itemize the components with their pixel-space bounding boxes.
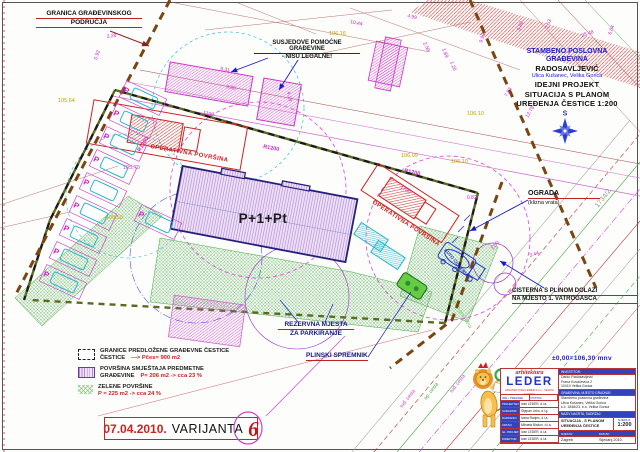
svg-text:P: P (92, 154, 101, 165)
callout-rezervna: REZERVNA MJESTA ZA PARKIRANJE (278, 321, 354, 337)
logo-box: arhitektura LEDER ARHITEKTURA LEDER d.o.… (501, 369, 558, 395)
compass-rose: S (552, 111, 578, 145)
drawing-title-line1: SITUACIJA S PLANOM (503, 90, 631, 100)
svg-text:2.28: 2.28 (106, 33, 117, 40)
date-variant-box: 07.04.2010. VARIJANTA 6 (104, 417, 258, 440)
svg-text:P: P (112, 108, 121, 119)
legend-row-building: POVRŠINA SMJEŠTAJA PREDMETNE GRAĐEVINEP=… (78, 366, 303, 380)
signature-row: CRTAO:Mihaela Blažon, d.i.a. (501, 422, 558, 429)
header-signature: POTPIS (530, 395, 559, 400)
svg-text:4.99: 4.99 (407, 13, 418, 21)
svg-text:106.16: 106.16 (329, 31, 346, 37)
legend-row-boundary: GRANICE PREDLOŽENE GRAĐEVNE ČESTICE ČEST… (78, 348, 303, 362)
svg-text:1100: 1100 (203, 110, 215, 118)
logo-leder: LEDER (501, 377, 558, 388)
callout-rezervna-line1: REZERVNA MJESTA (278, 321, 354, 330)
dashed-boundary-swatch (78, 349, 95, 360)
investor-section: INVESTITOR: Darko Radosavljević Frana Ko… (559, 369, 635, 390)
svg-text:P: P (52, 246, 61, 257)
callout-plinski-text: PLINSKI SPREMNIK (306, 352, 368, 361)
callout-susjedne-line2: - NISU LEGALNE! (282, 54, 332, 60)
building-hatch-swatch (78, 367, 95, 378)
drawing-title-line2: UREĐENJA ČESTICE 1:200 (503, 99, 631, 109)
drawing-name-section: NAZIV NACRTA, SADRŽAJ: SITUACIJA - S PLA… (559, 412, 635, 432)
road-label: tuđ. cesta (449, 373, 467, 394)
signature-row: RAZRADIO:Ivana Ranjec, d.i.a. (501, 415, 558, 422)
road-label: tuđ. cesta (399, 388, 417, 409)
svg-text:P: P (62, 223, 71, 234)
green-hatch-swatch (78, 385, 93, 394)
operational-area-label: OPERATIVNA POVRŠINA (150, 142, 230, 164)
svg-text:P: P (82, 177, 91, 188)
reserve-parking-stalls (354, 222, 405, 269)
legend-building-line1: POVRŠINA SMJEŠTAJA PREDMETNE (100, 366, 204, 373)
legend-building-area: P= 206 m2 -> cca 23 % (140, 373, 202, 379)
svg-text:106.09: 106.09 (401, 153, 418, 159)
callout-granica: GRANICA GRAĐEVINSKOG PODRUČJA (36, 10, 142, 28)
legend-row-green: ZELENE POVRŠINE P = 225 m2 -> cca 24 % (78, 384, 303, 398)
callout-cisterna: CISTERNA S PLINOM DOLAZI NA MJESTO 1. VA… (512, 288, 638, 304)
legend-building-line2: GRAĐEVINE (100, 373, 134, 379)
signature-row: DIREKTOR:Ivan LEDER, d.i.a. (501, 436, 558, 443)
callout-susjedne-line1: SUSJEDOVE POMOĆNE GRAĐEVINE (254, 40, 360, 54)
svg-text:3.44: 3.44 (529, 250, 540, 259)
north-letter: S (563, 111, 568, 118)
legend-boundary-area: —> Pčes= 900 m2 (131, 355, 180, 361)
signature-table: IME I PREZIME POTPIS PROJEKTANT:Ivan LED… (501, 395, 558, 443)
svg-text:10.44: 10.44 (350, 19, 364, 28)
svg-text:6.04: 6.04 (607, 24, 616, 35)
callout-plinski: PLINSKI SPREMNIK (306, 352, 368, 361)
svg-text:105.70: 105.70 (123, 165, 140, 171)
callout-ograda-line1: OGRADA (528, 190, 600, 199)
project-phase: IDEJNI PROJEKT (503, 80, 631, 90)
svg-text:P: P (72, 200, 81, 211)
elevation-datum-note: ±0,00=106,30 mnv (552, 355, 612, 362)
svg-text:1.89: 1.89 (440, 48, 449, 59)
svg-text:0.92: 0.92 (93, 49, 102, 60)
project-address: Ulica Kušanec, Velika Gorica (503, 73, 631, 80)
signature-row: GL. PROJEKTANT:Ivan LEDER, d.i.a. (501, 429, 558, 436)
project-type-line2: GRAĐEVINA (503, 56, 631, 64)
callout-granica-line2: PODRUČJA (36, 19, 142, 28)
road-label: op. cesta (423, 381, 440, 401)
legend-boundary-line2: ČESTICE (100, 355, 125, 361)
title-block: arhitektura LEDER ARHITEKTURA LEDER d.o.… (500, 368, 636, 444)
building-label: P+1+Pt (239, 211, 288, 226)
place-date-section: MJESTO:DATUM: ZagrebSiječanj 2010. (559, 431, 635, 443)
radius-label: R1200 (263, 144, 280, 153)
signature-row: SURADNIK:Stjepan Leko, d.i.g. (501, 408, 558, 415)
svg-text:1.20: 1.20 (448, 61, 457, 72)
header-name: IME I PREZIME (501, 395, 530, 400)
svg-text:105.50: 105.50 (106, 215, 123, 221)
svg-text:0.82: 0.82 (467, 195, 477, 201)
project-title-block: STAMBENO POSLOVNA GRAĐEVINA RADOSAVLJEVI… (503, 48, 631, 109)
callout-rezervna-line2: ZA PARKIRANJE (290, 330, 342, 337)
scale-cell: MJERILO: 1:200 (613, 418, 635, 430)
legend-green-line1: ZELENE POVRŠINE (98, 384, 161, 391)
svg-text:106.10: 106.10 (467, 111, 484, 117)
callout-granica-line1: GRANICA GRAĐEVINSKOG (36, 10, 142, 19)
callout-ograda: OGRADA (klizna vrata) (528, 190, 600, 206)
callout-cisterna-line1: CISTERNA S PLINOM DOLAZI (512, 288, 638, 296)
legend-green-area: P = 225 m2 -> cca 24 % (98, 391, 161, 397)
scan-edge-artifact (3, 0, 5, 452)
svg-text:106.10: 106.10 (451, 159, 468, 165)
signature-row: PROJEKTANT:Ivan LEDER, d.i.a. (501, 401, 558, 408)
svg-text:105.64: 105.64 (58, 98, 75, 104)
callout-ograda-line2: (klizna vrata) (528, 200, 559, 206)
date-stamp: 07.04.2010. (103, 422, 166, 436)
callout-susjedne: SUSJEDOVE POMOĆNE GRAĐEVINE - NISU LEGAL… (254, 40, 360, 60)
legend: GRANICE PREDLOŽENE GRAĐEVNE ČESTICE ČEST… (78, 348, 303, 402)
variant-label: VARIJANTA (172, 422, 243, 436)
callout-cisterna-line2: NA MJESTO 1. VATROGASCA (512, 296, 638, 304)
project-type-line1: STAMBENO POSLOVNA (503, 48, 631, 56)
building-section: GRAĐEVINA, MJESTO GRADNJE: Stambeno posl… (559, 390, 635, 411)
variant-number: 6 (248, 420, 259, 438)
legend-boundary-line1: GRANICE PREDLOŽENE GRAĐEVNE ČESTICE (100, 348, 229, 355)
svg-text:2.50: 2.50 (421, 41, 431, 53)
site-plan-sheet: tuđ. cesta op. cesta tuđ. cesta 1734/2 z… (0, 0, 640, 452)
project-client: RADOSAVLJEVIĆ (503, 64, 631, 73)
svg-text:P: P (102, 131, 111, 142)
svg-text:2.50: 2.50 (490, 240, 501, 251)
